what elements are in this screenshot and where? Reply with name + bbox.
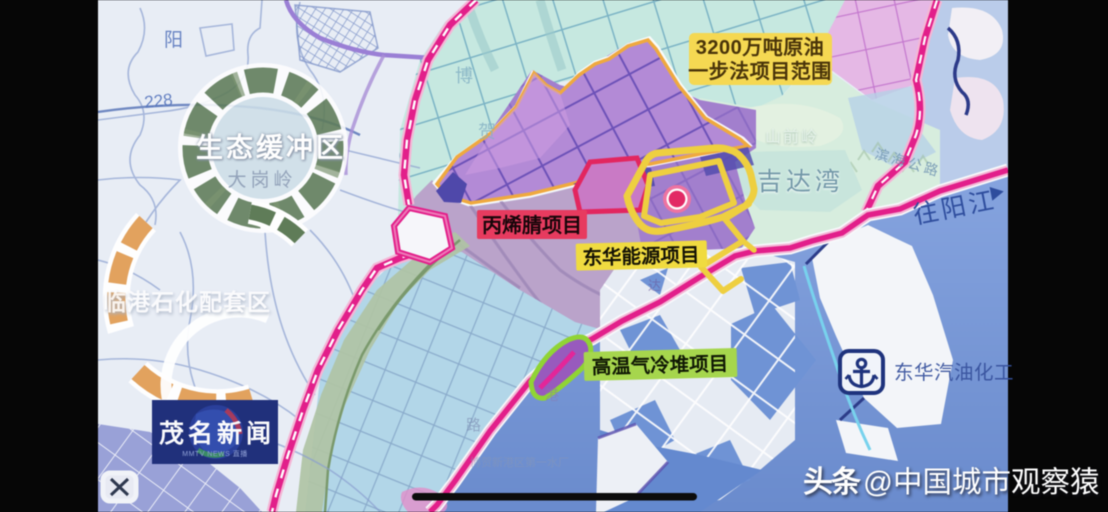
svg-text:博贺新港区第一水厂: 博贺新港区第一水厂: [470, 455, 569, 469]
svg-text:东华汽油化工: 东华汽油化工: [894, 362, 1014, 384]
svg-text:228: 228: [143, 90, 173, 112]
svg-text:路: 路: [466, 417, 481, 434]
svg-text:大岗岭: 大岗岭: [227, 169, 296, 191]
svg-text:茂名新闻: 茂名新闻: [159, 419, 275, 448]
svg-text:贺: 贺: [478, 122, 496, 142]
svg-text:港: 港: [545, 387, 559, 403]
svg-text:丙烯腈项目: 丙烯腈项目: [482, 213, 582, 237]
svg-text:山前岭: 山前岭: [765, 128, 819, 146]
svg-text:一步法项目范围: 一步法项目范围: [688, 59, 832, 83]
svg-text:达: 达: [648, 278, 661, 293]
svg-text:生态缓冲区: 生态缓冲区: [196, 133, 346, 163]
svg-text:高温气冷堆项目: 高温气冷堆项目: [591, 352, 728, 379]
svg-text:头条: 头条: [803, 466, 861, 499]
svg-text:东华能源项目: 东华能源项目: [582, 243, 700, 269]
svg-text:MMTV NEWS 直播: MMTV NEWS 直播: [182, 449, 248, 458]
svg-text:3200万吨原油: 3200万吨原油: [696, 35, 825, 59]
svg-text:博: 博: [455, 66, 473, 86]
svg-text:临港石化配套区: 临港石化配套区: [103, 289, 271, 315]
svg-text:阳: 阳: [164, 29, 183, 51]
svg-text:吉达湾: 吉达湾: [757, 168, 844, 196]
svg-text:@中国城市观察猿: @中国城市观察猿: [863, 466, 1099, 499]
